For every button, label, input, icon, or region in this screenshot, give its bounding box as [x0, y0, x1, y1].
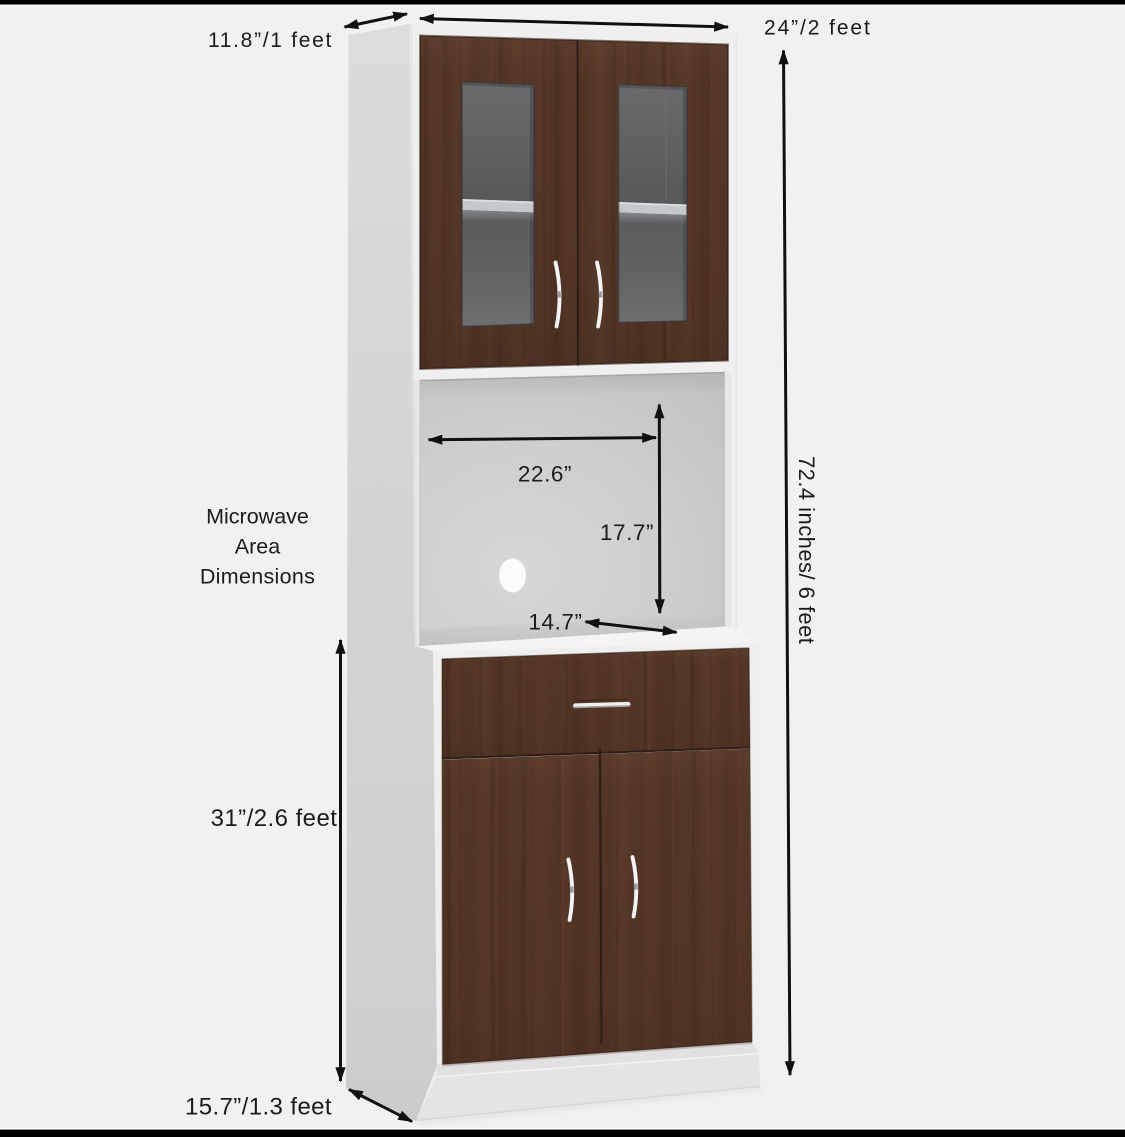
svg-text:Dimensions: Dimensions — [200, 564, 315, 588]
svg-text:31”/2.6 feet: 31”/2.6 feet — [211, 805, 338, 832]
svg-text:Area: Area — [235, 534, 280, 558]
svg-text:72.4 inches/ 6 feet: 72.4 inches/ 6 feet — [794, 456, 819, 644]
svg-text:17.7”: 17.7” — [600, 520, 654, 545]
svg-text:11.8”/1 feet: 11.8”/1 feet — [208, 29, 333, 52]
svg-text:15.7”/1.3 feet: 15.7”/1.3 feet — [185, 1094, 332, 1121]
svg-text:24”/2 feet: 24”/2 feet — [764, 17, 872, 40]
svg-text:22.6”: 22.6” — [518, 462, 572, 487]
svg-text:14.7”: 14.7” — [528, 610, 582, 635]
svg-text:Microwave: Microwave — [206, 504, 309, 528]
